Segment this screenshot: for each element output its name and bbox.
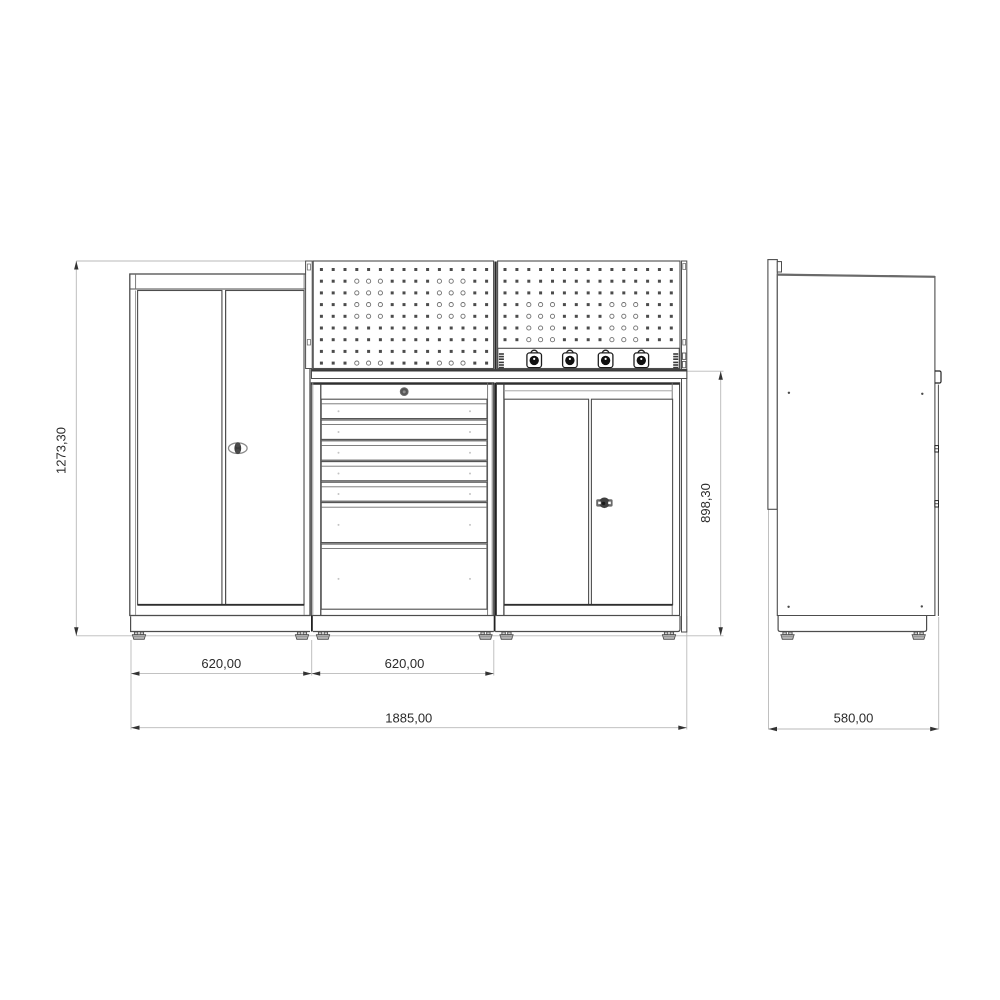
svg-text:580,00: 580,00 xyxy=(834,711,874,726)
svg-text:1273,30: 1273,30 xyxy=(54,427,69,474)
svg-text:898,30: 898,30 xyxy=(698,483,713,523)
svg-text:620,00: 620,00 xyxy=(385,656,425,671)
svg-text:620,00: 620,00 xyxy=(201,656,241,671)
svg-text:1885,00: 1885,00 xyxy=(385,710,432,725)
